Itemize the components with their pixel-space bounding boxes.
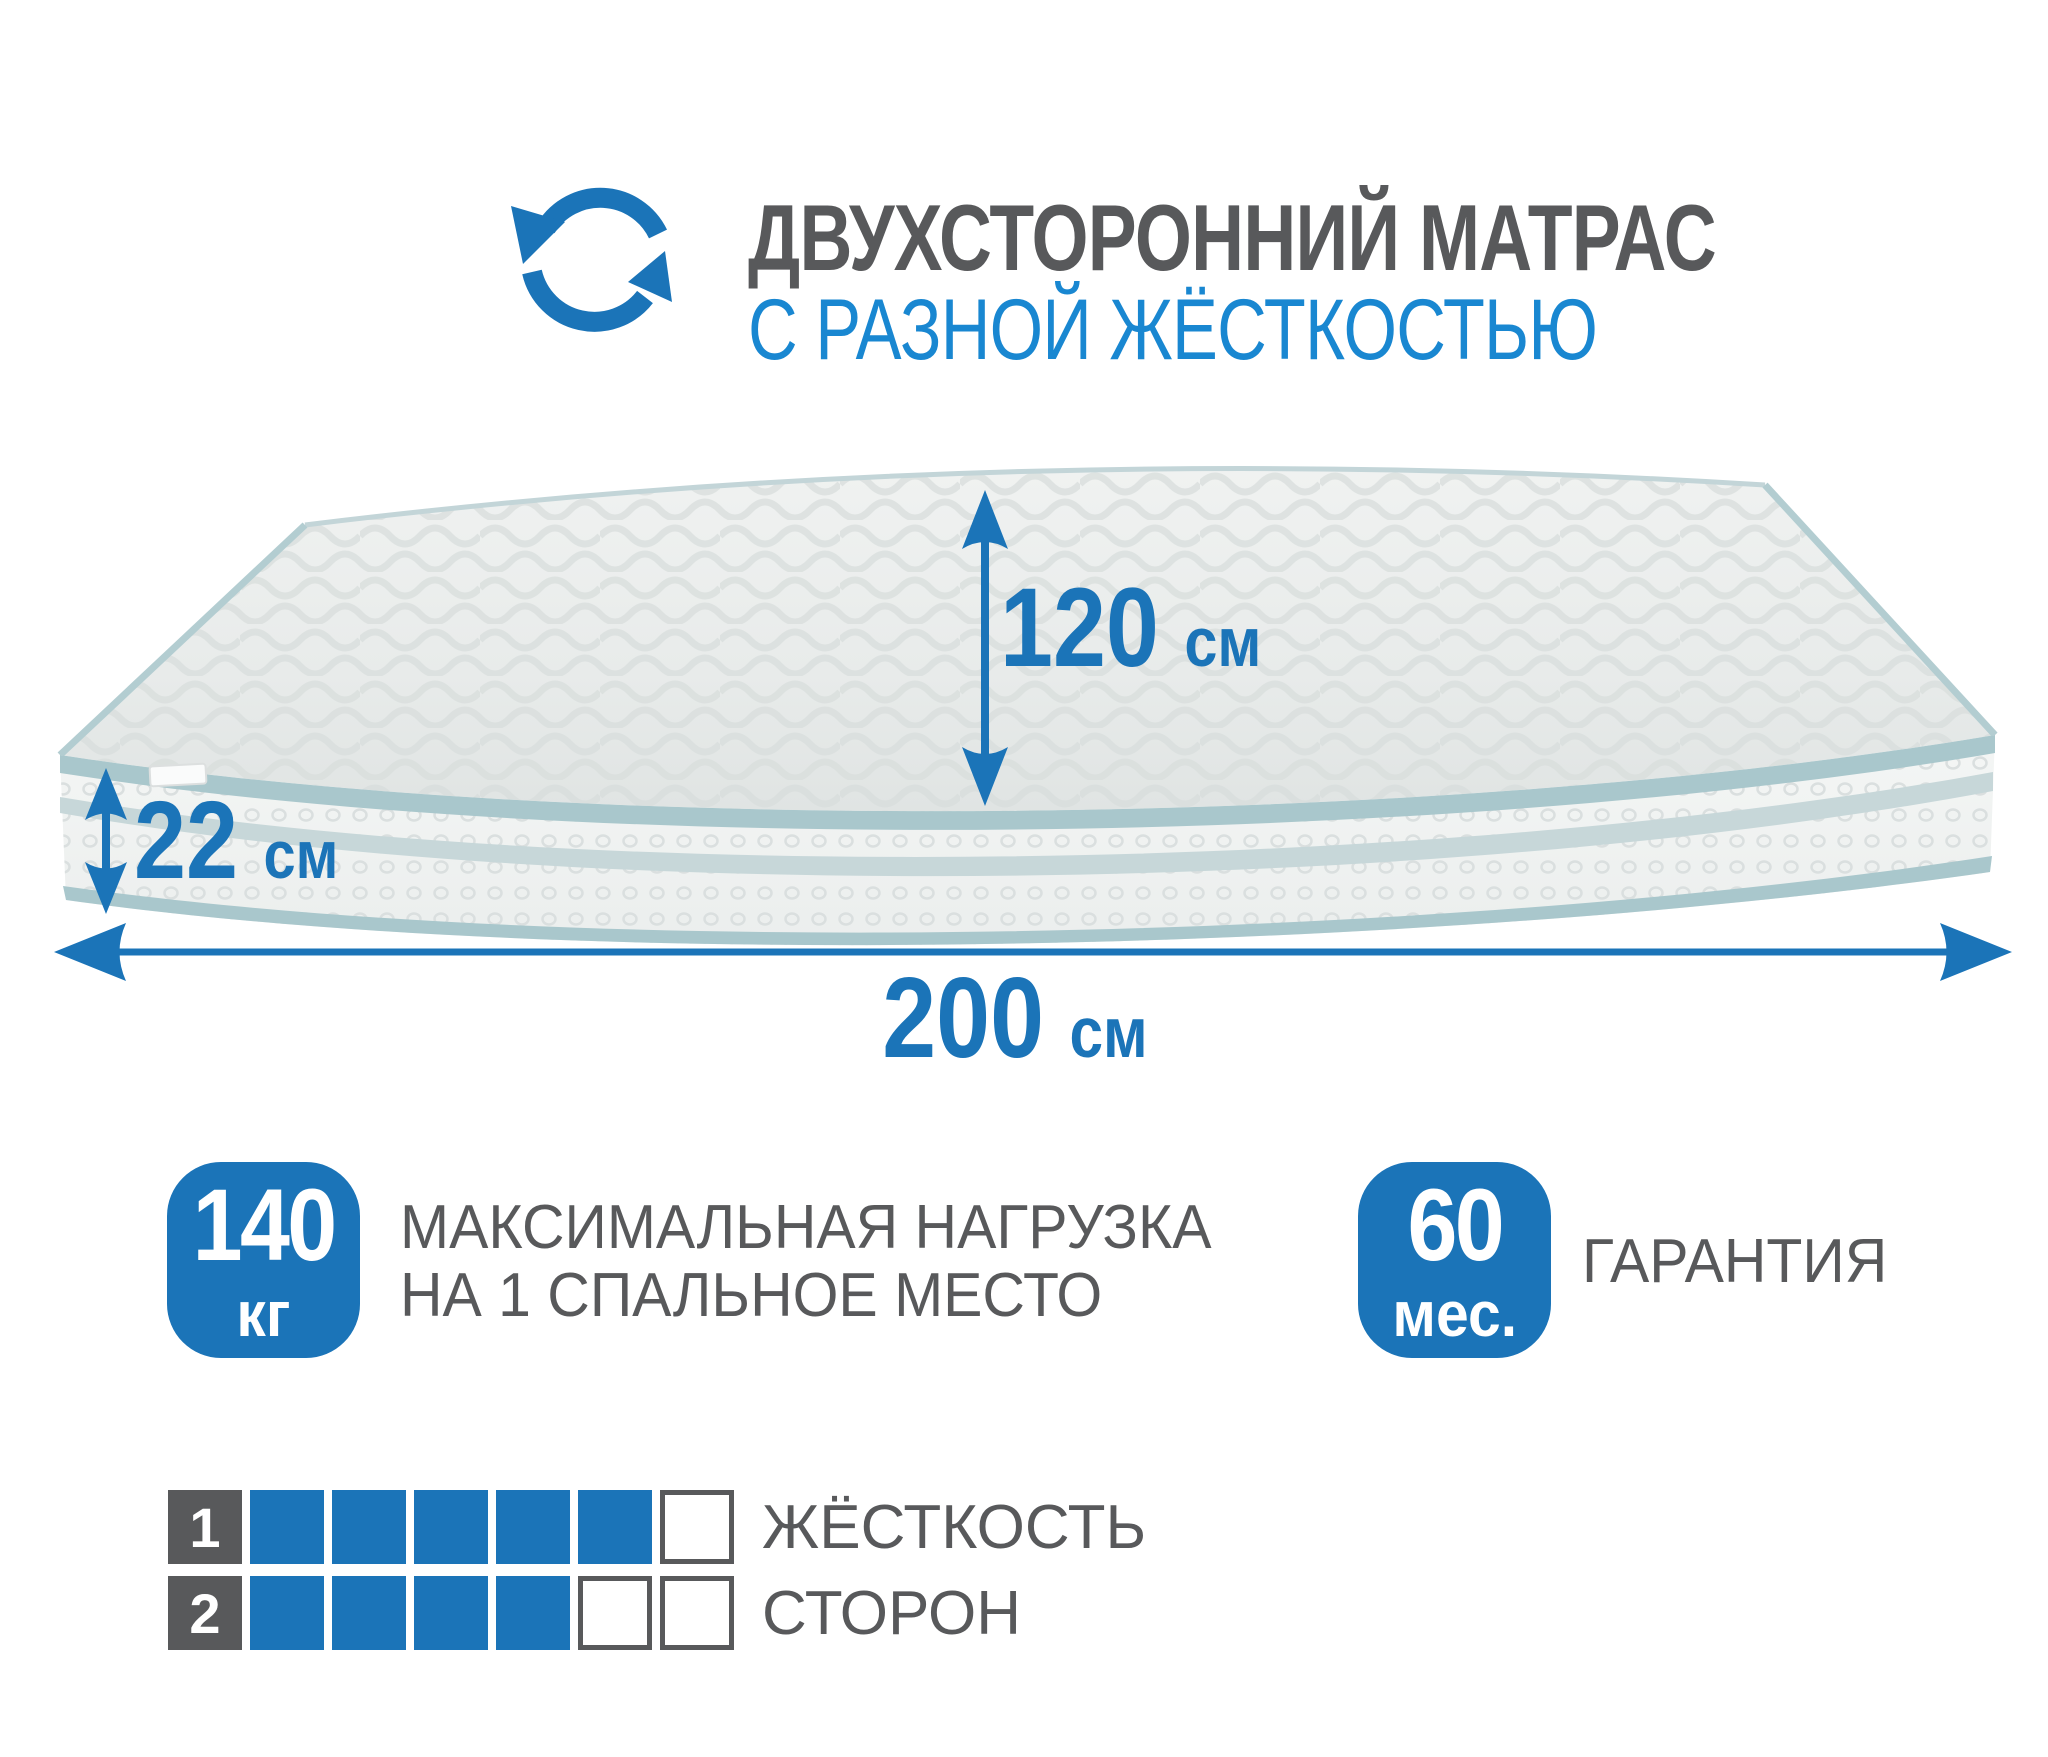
height-unit: см bbox=[264, 821, 339, 889]
firmness-row-side-1: 1 bbox=[168, 1490, 734, 1564]
height-dimension-label: 22 см bbox=[134, 786, 338, 896]
warranty-value: 60 bbox=[1407, 1174, 1502, 1276]
firmness-cell-filled bbox=[332, 1490, 406, 1564]
firmness-scale-side-1 bbox=[250, 1490, 734, 1564]
firmness-cell-filled bbox=[414, 1490, 488, 1564]
max-load-label-line2: НА 1 СПАЛЬНОЕ МЕСТО bbox=[400, 1262, 1102, 1330]
depth-dimension-label: 120 см bbox=[1000, 572, 1261, 684]
firmness-scale-side-2 bbox=[250, 1576, 734, 1650]
max-load-label: МАКСИМАЛЬНАЯ НАГРУЗКА НА 1 СПАЛЬНОЕ МЕСТ… bbox=[400, 1194, 1254, 1330]
width-unit: см bbox=[1069, 998, 1147, 1069]
firmness-cell-empty bbox=[660, 1576, 734, 1650]
depth-value: 120 bbox=[1000, 572, 1159, 684]
warranty-unit: мес. bbox=[1392, 1282, 1517, 1346]
firmness-label-line1: ЖЁСТКОСТЬ bbox=[762, 1490, 1146, 1564]
firmness-cell-filled bbox=[250, 1576, 324, 1650]
firmness-cell-filled bbox=[250, 1490, 324, 1564]
max-load-badge: 140 кг bbox=[167, 1162, 360, 1358]
firmness-cell-empty bbox=[660, 1490, 734, 1564]
height-value: 22 bbox=[134, 786, 238, 896]
firmness-cell-empty bbox=[578, 1576, 652, 1650]
firmness-row-side-2: 2 bbox=[168, 1576, 734, 1650]
width-value: 200 bbox=[882, 962, 1044, 1076]
side-2-number-badge: 2 bbox=[168, 1576, 242, 1650]
depth-unit: см bbox=[1184, 607, 1261, 677]
firmness-cell-filled bbox=[578, 1490, 652, 1564]
firmness-cell-filled bbox=[332, 1576, 406, 1650]
width-dimension-label: 200 см bbox=[845, 962, 1185, 1076]
firmness-cell-filled bbox=[496, 1490, 570, 1564]
max-load-label-line1: МАКСИМАЛЬНАЯ НАГРУЗКА bbox=[400, 1194, 1212, 1262]
mattress-infographic: ДВУХСТОРОННИЙ МАТРАС С РАЗНОЙ ЖЁСТКОСТЬЮ bbox=[0, 0, 2048, 1757]
firmness-label-line2: СТОРОН bbox=[762, 1576, 1021, 1650]
firmness-cell-filled bbox=[414, 1576, 488, 1650]
firmness-cell-filled bbox=[496, 1576, 570, 1650]
warranty-badge: 60 мес. bbox=[1358, 1162, 1551, 1358]
max-load-unit: кг bbox=[237, 1282, 291, 1346]
max-load-value: 140 bbox=[193, 1174, 335, 1276]
warranty-label-text: ГАРАНТИЯ bbox=[1582, 1228, 1887, 1296]
side-1-number-badge: 1 bbox=[168, 1490, 242, 1564]
warranty-label: ГАРАНТИЯ bbox=[1582, 1228, 1903, 1296]
